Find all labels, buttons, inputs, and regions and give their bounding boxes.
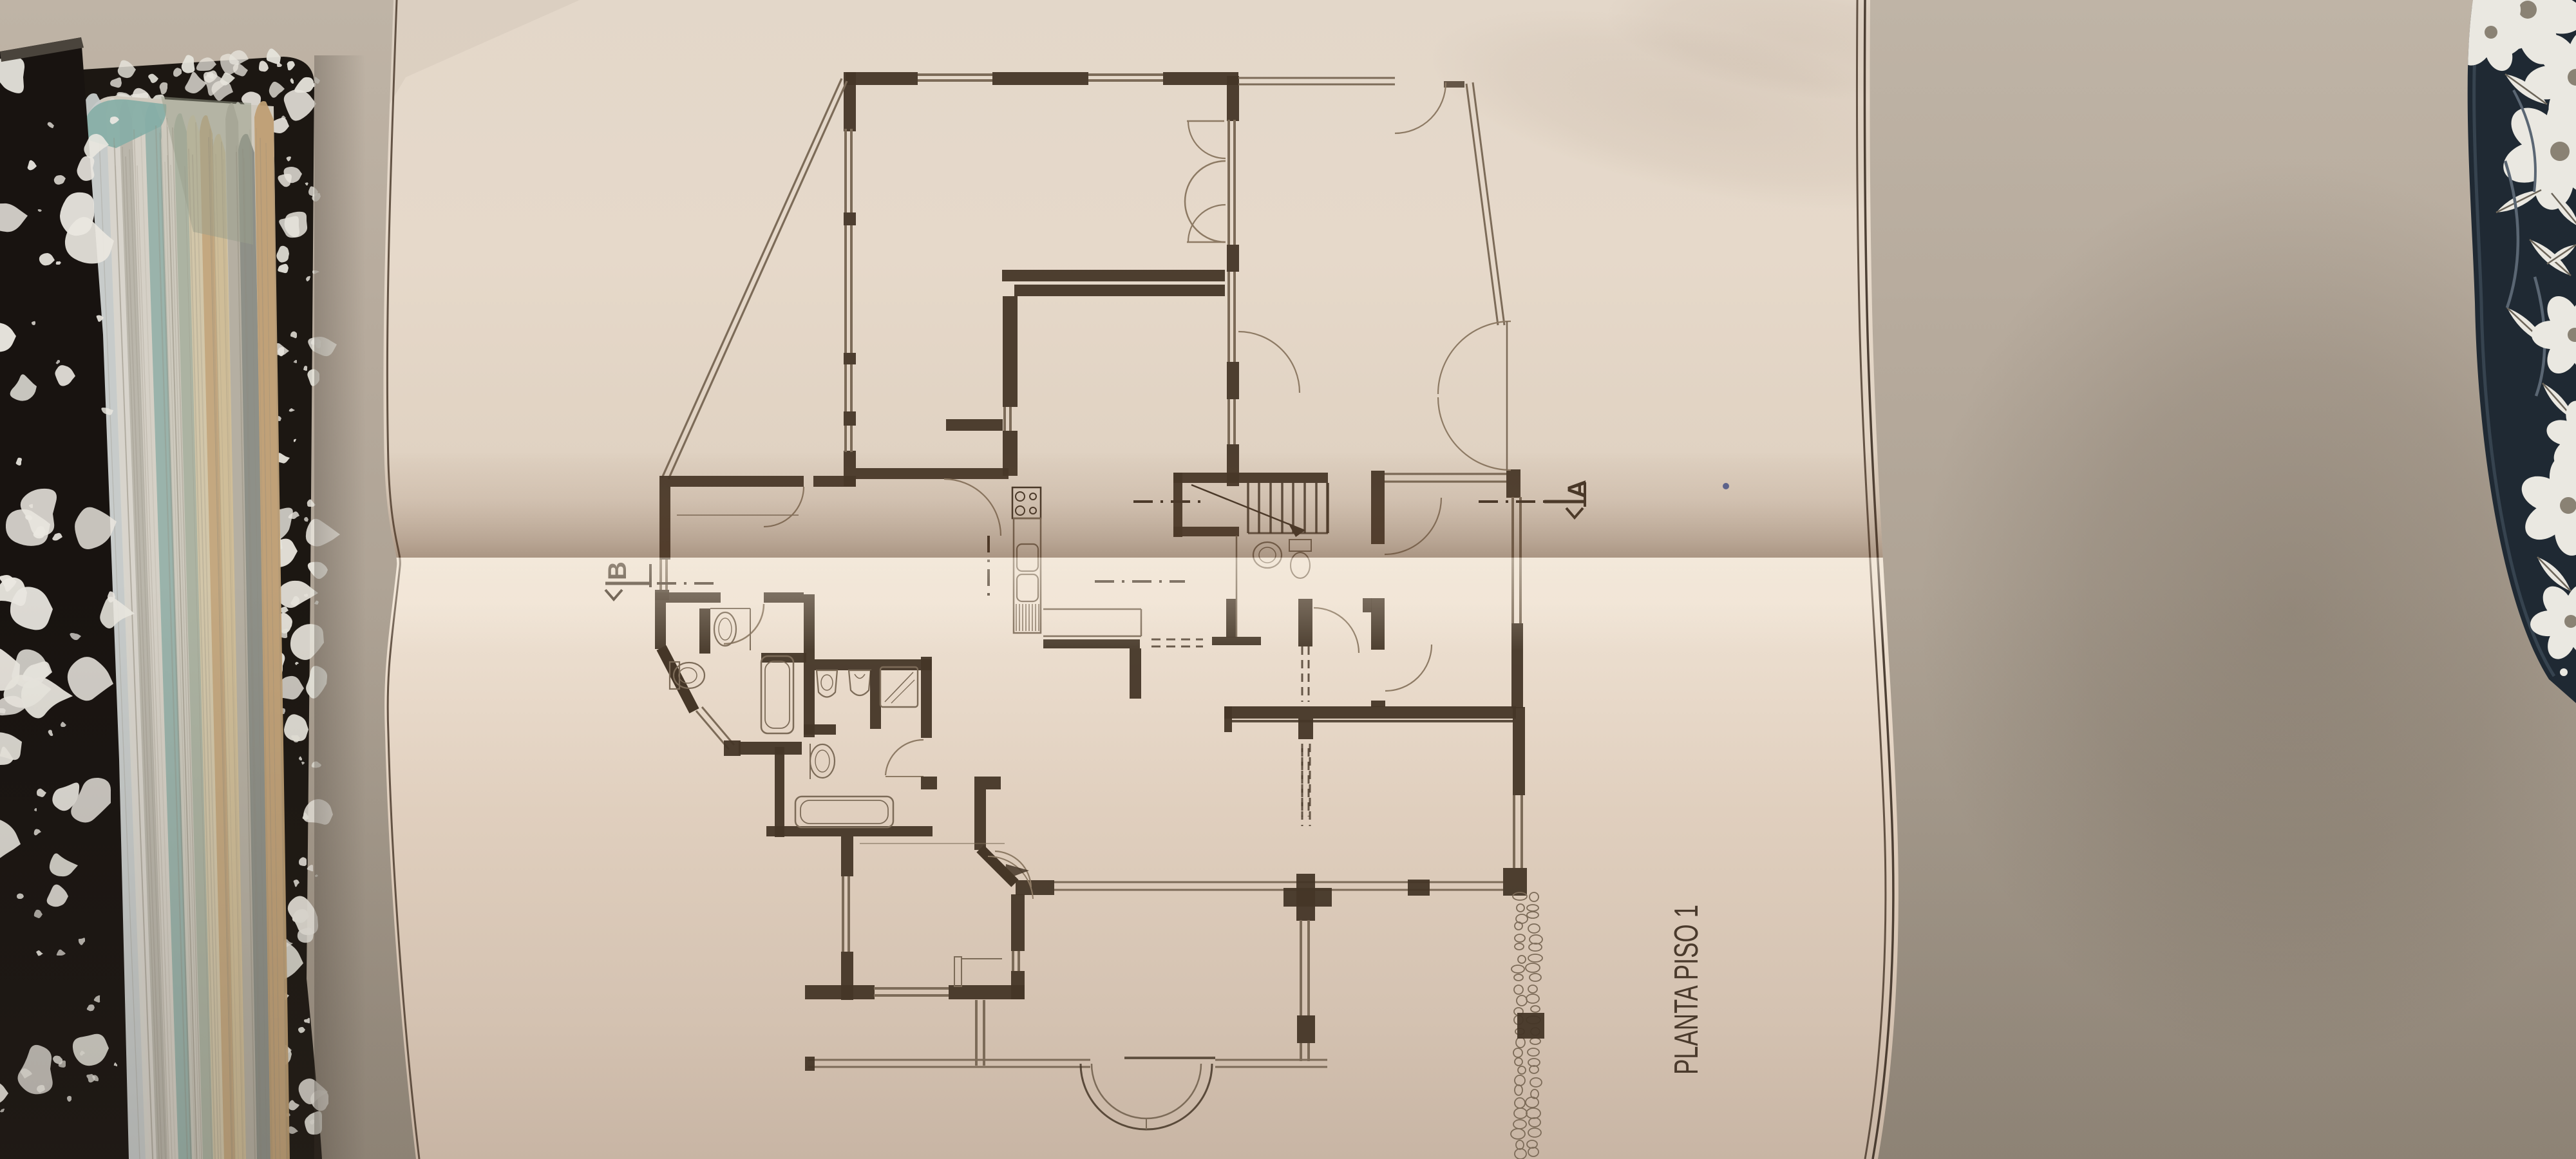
svg-text:PLANTA PISO 1: PLANTA PISO 1	[1668, 905, 1705, 1075]
